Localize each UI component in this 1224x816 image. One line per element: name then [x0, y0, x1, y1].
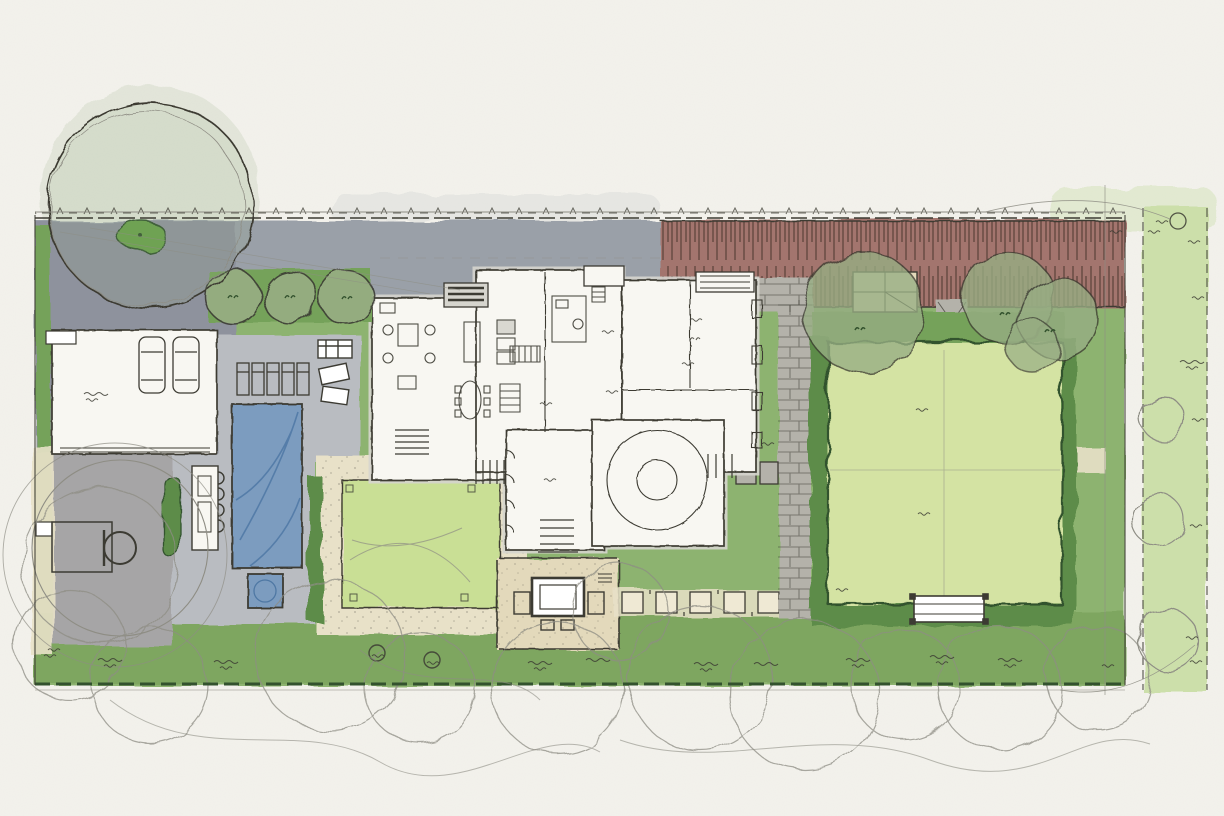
- fire-table: [532, 578, 584, 616]
- hedge-screen: [164, 476, 180, 558]
- great-lawn: [828, 342, 1062, 604]
- specimen-tree-canopy: [47, 102, 253, 308]
- lounge-seating: [318, 340, 352, 405]
- site-plan-canvas: [0, 0, 1224, 816]
- site-plan-sheet: [0, 0, 1224, 816]
- stepping-stone-path: [614, 589, 784, 617]
- fire-pit-terrace: [497, 558, 619, 650]
- side-yard-strip: [1132, 206, 1207, 692]
- spa: [248, 574, 283, 608]
- garden-bench: [910, 594, 988, 624]
